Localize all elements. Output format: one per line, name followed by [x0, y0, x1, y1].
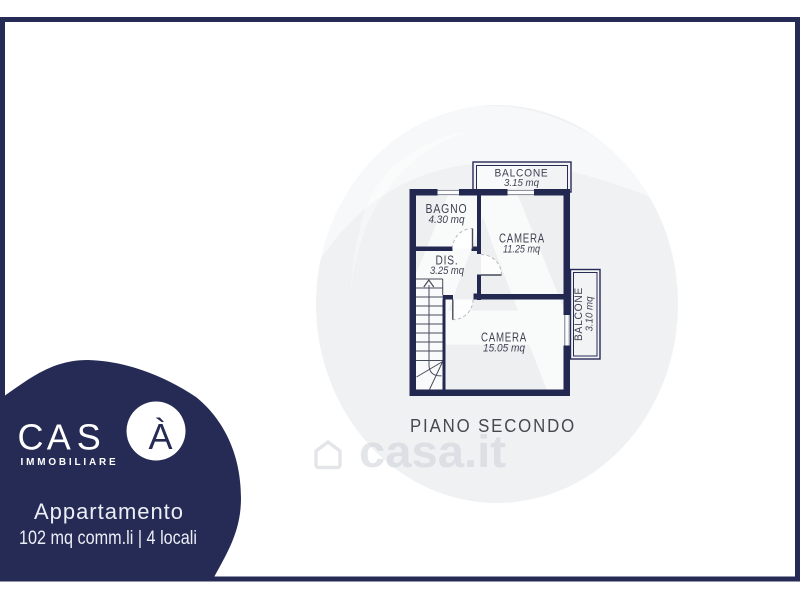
- svg-text:102 mq comm.li | 4 locali: 102 mq comm.li | 4 locali: [19, 528, 197, 549]
- svg-text:4.30 mq: 4.30 mq: [429, 214, 466, 226]
- svg-text:3.25 mq: 3.25 mq: [430, 265, 465, 277]
- svg-text:BALCONE: BALCONE: [573, 287, 585, 341]
- svg-text:3.10 mq: 3.10 mq: [585, 296, 596, 331]
- svg-text:Appartamento: Appartamento: [34, 499, 184, 524]
- svg-text:3.15 mq: 3.15 mq: [504, 178, 539, 189]
- svg-text:C: C: [18, 416, 44, 457]
- svg-text:IMMOBILIARE: IMMOBILIARE: [21, 456, 119, 468]
- svg-text:À: À: [148, 416, 172, 457]
- svg-text:A: A: [47, 416, 71, 457]
- svg-text:15.05 mq: 15.05 mq: [483, 343, 526, 355]
- svg-text:casa.it: casa.it: [359, 426, 506, 477]
- svg-text:S: S: [77, 416, 101, 457]
- svg-text:11.25 mq: 11.25 mq: [503, 244, 541, 256]
